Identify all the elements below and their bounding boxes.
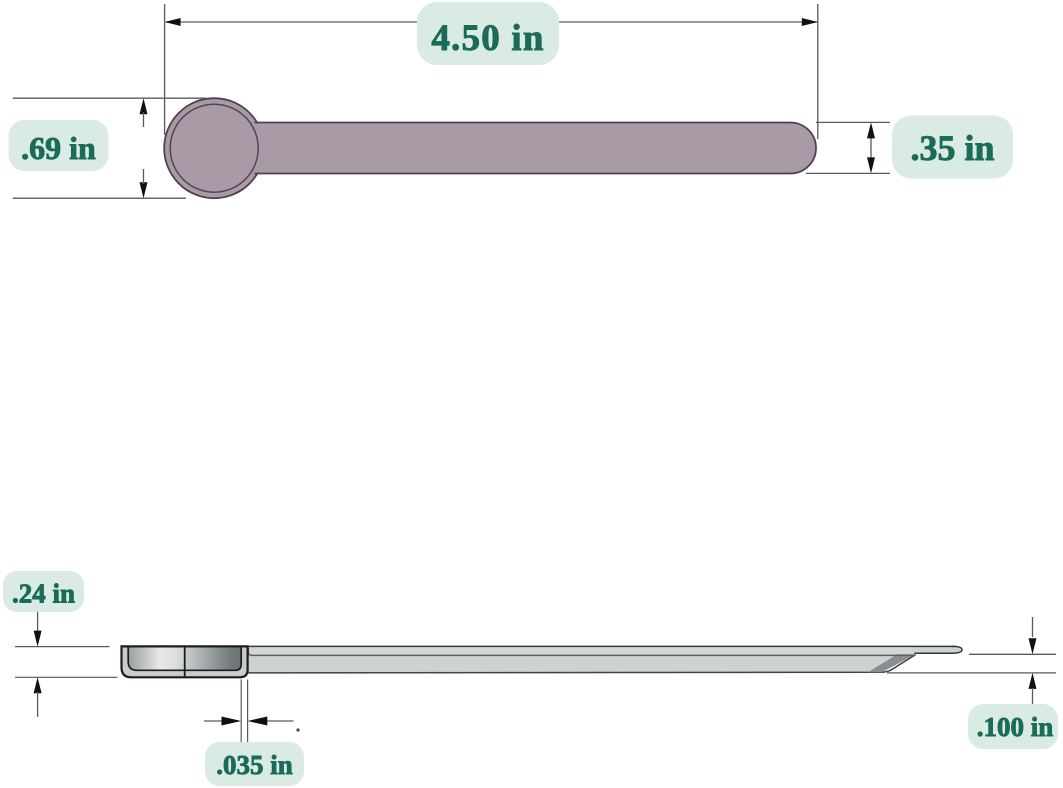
svg-text:.24 in: .24 in (12, 579, 75, 609)
svg-text:.35 in: .35 in (910, 128, 994, 168)
svg-text:4.50 in: 4.50 in (431, 18, 544, 59)
svg-text:.69 in: .69 in (21, 130, 96, 166)
svg-text:.100 in: .100 in (977, 712, 1054, 742)
svg-text:.035 in: .035 in (216, 750, 293, 780)
